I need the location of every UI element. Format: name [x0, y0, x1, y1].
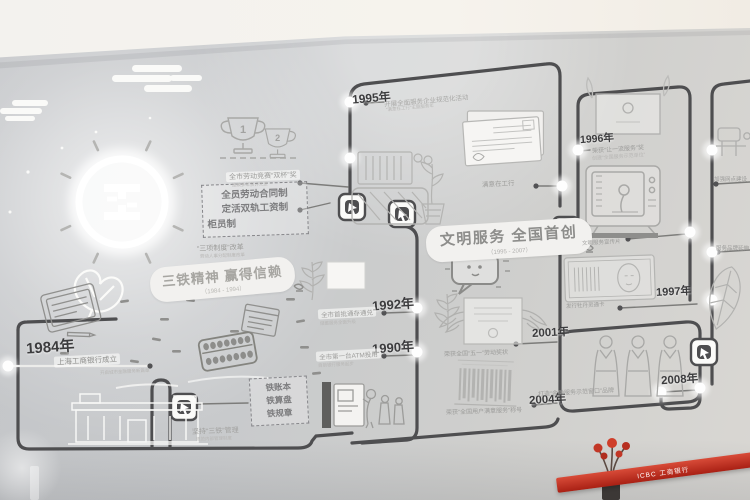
tap-icon [691, 339, 717, 365]
year-label-2008: 2008年 [660, 370, 698, 389]
banknote-icon [564, 255, 655, 302]
iron-box: 铁账本 铁算盘 铁规章 [249, 376, 309, 426]
barcode-icon [454, 360, 517, 406]
trophy-second-label: 2 [275, 133, 280, 143]
letter-icon [462, 106, 547, 166]
tap-icon [389, 201, 415, 227]
trophy-icon: 1 2 [220, 118, 296, 158]
leaf-icon [75, 270, 123, 322]
wheat-icon [435, 294, 459, 332]
tap-icon [171, 394, 197, 420]
abacus-icon [198, 331, 258, 371]
certificate-icon [440, 298, 546, 344]
caption-fragment-1: 加强网点建设 [714, 175, 747, 183]
tv-icon [586, 166, 660, 238]
year-label-1997: 1997年 [656, 282, 692, 300]
logo-glow [68, 148, 176, 256]
timeline-mural-art: 1 2 [0, 0, 750, 500]
trophy-first-label: 1 [240, 124, 246, 136]
wheat-icon [300, 262, 324, 300]
screen-icon [327, 262, 365, 289]
reform-box-line3: 柜员制 [207, 215, 303, 233]
icbc-logo-icon [60, 140, 184, 264]
trophy-caption-sub: 连续多年获评先进 [232, 181, 268, 188]
iron-box-line3: 铁规章 [253, 406, 306, 422]
frame-icon [587, 76, 670, 134]
wall-photo: 1 2 [0, 0, 750, 500]
caption-fragment-2: 服务品牌延伸 [716, 244, 749, 252]
iron-box-caption-sub: 规范内部管理制度 [196, 435, 232, 442]
year-label-1992: 1992年 [371, 293, 414, 315]
atm-scene-icon [322, 382, 404, 428]
reform-box: 全员劳动合同制 定活双轨工资制 柜员制 [201, 181, 309, 237]
caption-satisfied: 满意在工行 [482, 177, 515, 189]
year-label-2001: 2001年 [532, 323, 570, 341]
